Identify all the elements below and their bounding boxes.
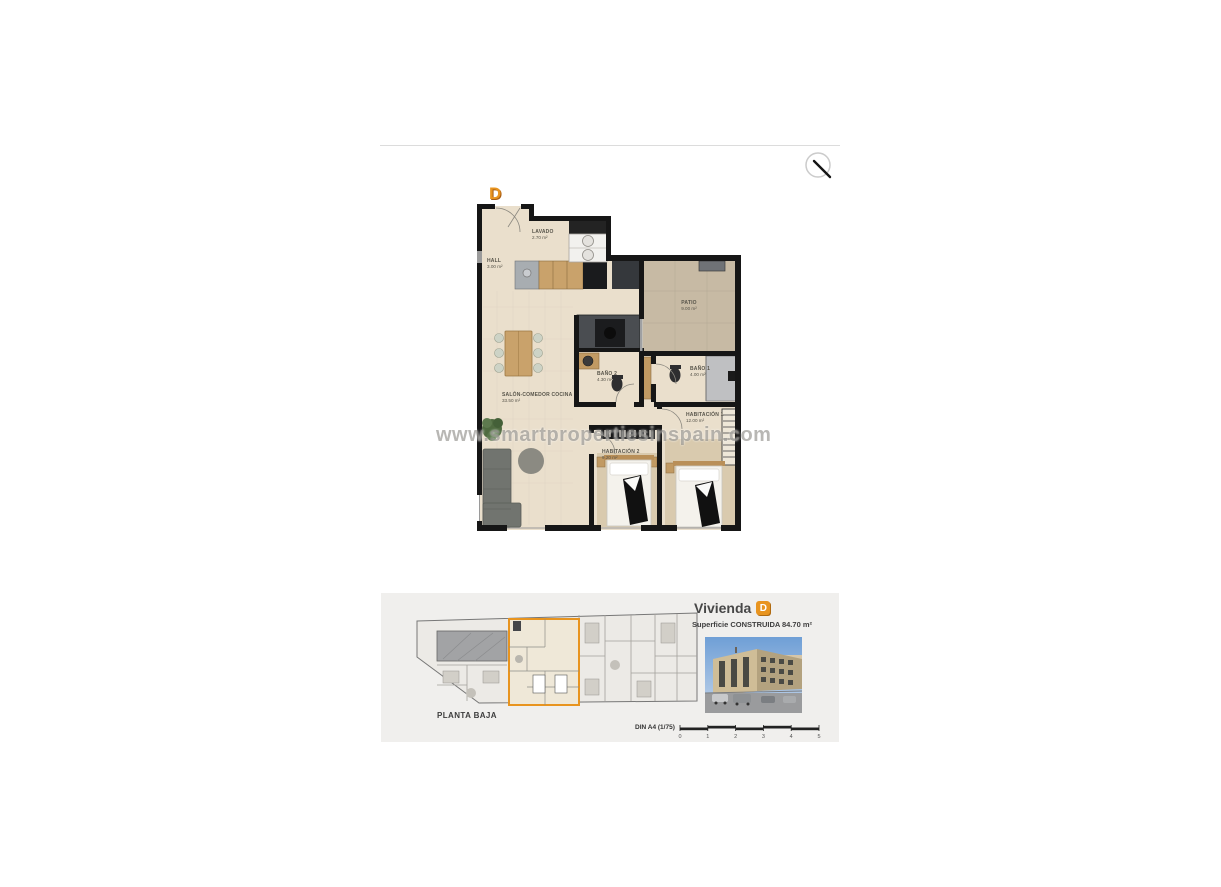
- svg-text:4: 4: [790, 734, 793, 739]
- svg-text:4.00 m²: 4.00 m²: [690, 372, 706, 377]
- kitchen-island: [577, 315, 640, 351]
- dining-table: [495, 331, 543, 376]
- svg-text:2.70 m²: 2.70 m²: [532, 235, 548, 240]
- page: D: [0, 0, 1221, 887]
- room-label-salon: SALÓN-COMEDOR COCINA: [502, 390, 573, 398]
- patio-slider: [640, 319, 643, 351]
- siteplan-image: [409, 601, 705, 711]
- svg-text:3.00 m²: 3.00 m²: [487, 264, 503, 269]
- unit-title-text: Vivienda: [694, 600, 751, 616]
- svg-text:9.00 m²: 9.00 m²: [681, 306, 697, 311]
- svg-text:4.30 m²: 4.30 m²: [597, 377, 613, 382]
- magnifier-icon: [805, 152, 835, 182]
- scale-ruler: 0 1 2 3 4 5: [678, 721, 823, 739]
- scale-bar: DIN A4 (1/75) 0 1 2: [635, 721, 823, 739]
- svg-text:1: 1: [706, 734, 709, 739]
- room-label-hab2: HABITACIÓN 2: [602, 447, 640, 455]
- unit-letter-badge: D: [756, 601, 770, 615]
- washer-dryer: [569, 219, 607, 262]
- room-label-hab1: HABITACIÓN 1: [686, 410, 724, 418]
- svg-text:33.50 m²: 33.50 m²: [502, 398, 521, 403]
- info-panel: PLANTA BAJA Vivienda D Superficie CONSTR…: [381, 593, 839, 742]
- room-label-bano1: BAÑO 1: [690, 365, 710, 372]
- shower: [706, 356, 737, 401]
- svg-text:12.00 m²: 12.00 m²: [686, 418, 705, 423]
- kitchen-counters: [515, 261, 640, 289]
- gallery-divider: [380, 145, 840, 146]
- unit-letter-label: D: [489, 184, 501, 204]
- surface-row: Superficie CONSTRUIDA 84.70 m²: [692, 620, 812, 629]
- zoom-button[interactable]: [805, 152, 835, 182]
- svg-text:9.20 m²: 9.20 m²: [602, 455, 618, 460]
- floorplan-image: HALL 3.00 m² LAVADO 2.70 m² PATIO 9.00 m…: [477, 203, 741, 531]
- scale-label: DIN A4 (1/75): [635, 721, 675, 731]
- svg-text:2: 2: [734, 734, 737, 739]
- building-photo: [705, 637, 802, 713]
- surface-value: 84.70 m²: [782, 620, 812, 629]
- room-label-bano2: BAÑO 2: [597, 370, 617, 377]
- svg-text:5: 5: [817, 734, 820, 739]
- siteplan-label: PLANTA BAJA: [437, 711, 497, 720]
- surface-label: Superficie CONSTRUIDA: [692, 620, 780, 629]
- wall-vent: [477, 251, 482, 263]
- svg-text:3: 3: [762, 734, 765, 739]
- svg-text:0: 0: [678, 734, 681, 739]
- watermark: www.smartpropertiesinspain.com: [436, 424, 776, 447]
- unit-title: Vivienda D: [694, 600, 770, 616]
- round-rug: [518, 448, 544, 474]
- floorplan: HALL 3.00 m² LAVADO 2.70 m² PATIO 9.00 m…: [477, 203, 741, 531]
